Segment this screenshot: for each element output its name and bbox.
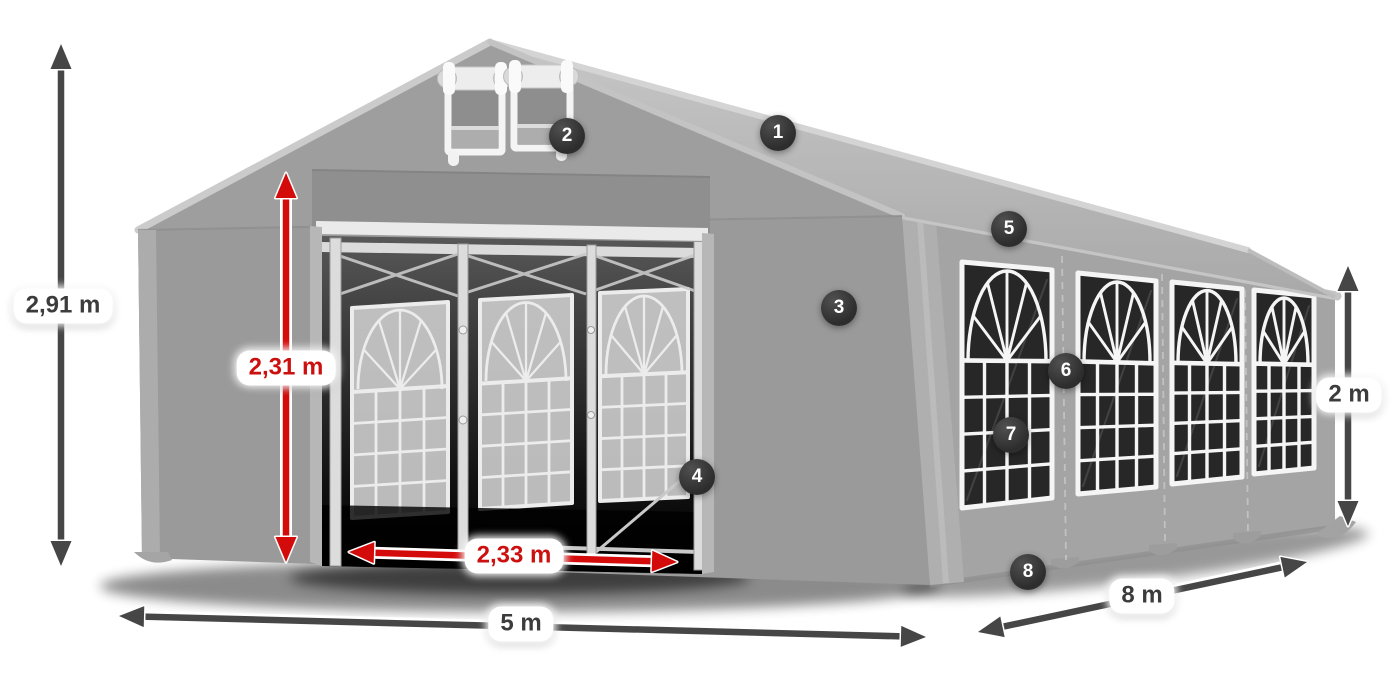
hotspot-8[interactable]: 8	[1010, 554, 1046, 590]
hotspot-2[interactable]: 2	[549, 118, 585, 154]
hotspot-1[interactable]: 1	[760, 115, 796, 151]
interior-mesh-window-3	[600, 289, 688, 501]
tent-dimensions-diagram: 2,91 m2,31 m2,33 m5 m8 m2 m12345678	[0, 0, 1400, 700]
tent-illustration	[0, 0, 1400, 700]
roof-vent-left	[438, 62, 513, 166]
dimension-arrow-side-height	[1338, 266, 1359, 526]
entrance	[310, 170, 714, 574]
side-window-1	[962, 262, 1052, 508]
hotspot-7[interactable]: 7	[993, 417, 1029, 453]
hotspot-6[interactable]: 6	[1048, 353, 1084, 389]
interior-mesh-window-2	[480, 295, 572, 509]
hotspot-5[interactable]: 5	[991, 211, 1027, 247]
interior-mesh-window-1	[352, 302, 448, 518]
side-window-2	[1078, 273, 1156, 494]
side-wall-windows	[962, 262, 1314, 508]
side-window-4	[1254, 290, 1314, 474]
dimension-arrow-front-width	[119, 606, 926, 647]
hotspot-4[interactable]: 4	[679, 459, 715, 495]
hotspot-3[interactable]: 3	[821, 290, 857, 326]
side-window-3	[1172, 282, 1242, 484]
dimension-arrow-total-height	[51, 44, 72, 566]
